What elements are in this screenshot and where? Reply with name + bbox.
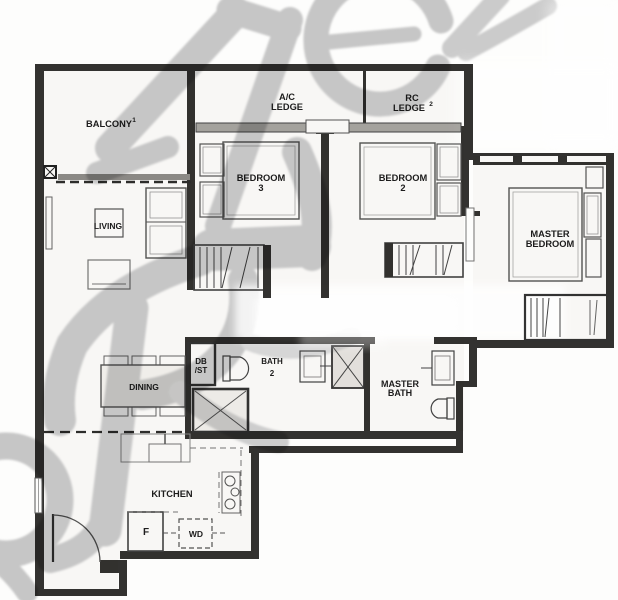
svg-text:LEDGE: LEDGE (271, 102, 303, 112)
svg-text:DINING: DINING (129, 382, 159, 392)
svg-text:/ST: /ST (195, 366, 208, 375)
svg-text:BEDROOM: BEDROOM (379, 173, 428, 183)
svg-text:BATH: BATH (388, 388, 412, 398)
svg-text:1: 1 (132, 117, 136, 124)
svg-text:A/C: A/C (279, 92, 295, 102)
svg-text:3: 3 (258, 183, 263, 193)
svg-text:BEDROOM: BEDROOM (526, 239, 575, 249)
svg-text:WD: WD (189, 529, 203, 539)
svg-text:DB: DB (195, 357, 207, 366)
svg-text:RC: RC (405, 93, 419, 103)
svg-text:2: 2 (429, 101, 433, 108)
svg-text:KITCHEN: KITCHEN (151, 489, 193, 499)
svg-text:BALCONY: BALCONY (86, 119, 133, 129)
svg-text:LIVING: LIVING (94, 221, 123, 231)
svg-text:LEDGE: LEDGE (393, 103, 425, 113)
svg-text:BEDROOM: BEDROOM (237, 173, 286, 183)
svg-text:2: 2 (400, 183, 405, 193)
svg-text:F: F (143, 527, 149, 538)
svg-text:BATH: BATH (261, 357, 283, 366)
svg-text:2: 2 (270, 369, 275, 378)
svg-text:MASTER: MASTER (530, 229, 570, 239)
